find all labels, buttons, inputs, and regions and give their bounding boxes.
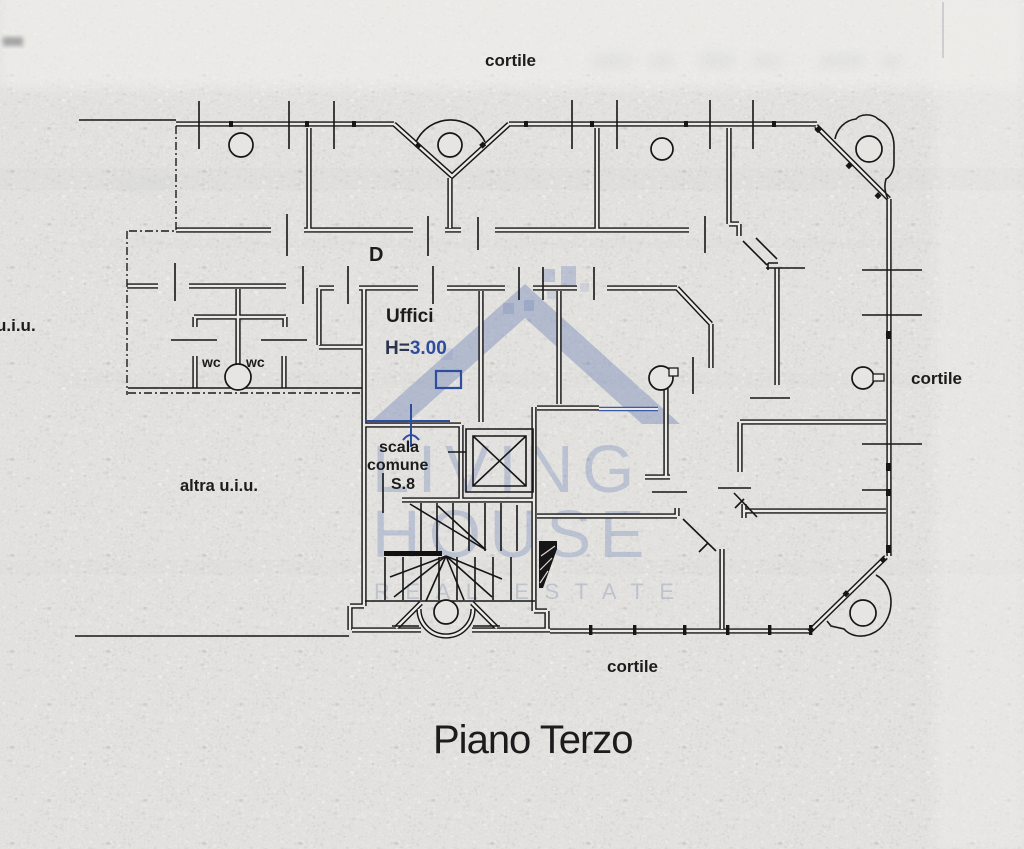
svg-text:altra u.i.u.: altra u.i.u.	[180, 477, 258, 495]
svg-text:comune: comune	[367, 457, 428, 474]
svg-text:cortile: cortile	[911, 369, 962, 388]
svg-text:Piano Terzo: Piano Terzo	[433, 718, 633, 762]
svg-text:u.i.u.: u.i.u.	[0, 316, 36, 335]
svg-text:cortile: cortile	[485, 51, 536, 70]
svg-text:H=3.00: H=3.00	[385, 338, 447, 359]
svg-text:wc: wc	[201, 354, 221, 370]
svg-text:Uffici: Uffici	[386, 306, 434, 327]
svg-text:D: D	[369, 244, 383, 266]
svg-text:HOUSE: HOUSE	[372, 497, 653, 572]
svg-text:scala: scala	[379, 439, 419, 456]
svg-text:cortile: cortile	[607, 657, 658, 676]
svg-text:wc: wc	[245, 354, 265, 370]
svg-text:S.8: S.8	[391, 476, 415, 493]
